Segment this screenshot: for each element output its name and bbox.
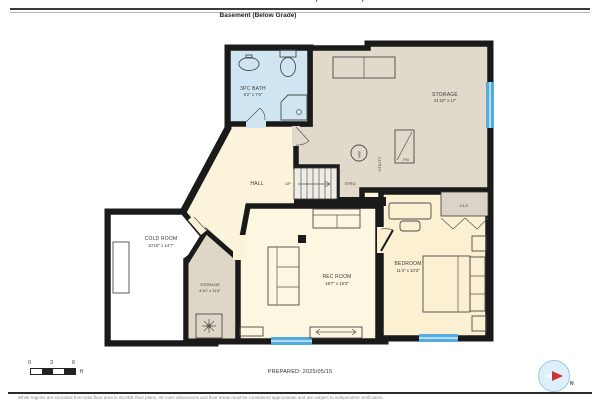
scale-6: 6 bbox=[72, 360, 75, 366]
floorplan-sheet: Canfield Crescent, Ottawa, ON Basement (… bbox=[0, 0, 600, 400]
label-bedroom-dims: 11'4" x 10'3" bbox=[396, 268, 420, 273]
window-rec bbox=[271, 337, 312, 345]
label-rec-dims: 18'7" x 15'3" bbox=[325, 281, 349, 286]
scale-0: 0 bbox=[28, 360, 31, 366]
label-rec: REC ROOM bbox=[322, 274, 351, 280]
prepared-date: PREPARED: 2025/05/15 bbox=[0, 369, 600, 375]
stairs bbox=[294, 168, 337, 199]
label-utility: UTILITY bbox=[377, 156, 382, 171]
label-storage-small: STORAGE bbox=[200, 282, 220, 287]
label-strg: STRG bbox=[344, 181, 355, 186]
label-up: UP bbox=[285, 181, 291, 186]
utility-door-gap bbox=[292, 126, 300, 146]
label-closet: CLO bbox=[460, 203, 468, 208]
label-storage-small-dims: 4'10" x 11'6" bbox=[199, 288, 221, 293]
label-hall: HALL bbox=[250, 181, 263, 187]
svg-text:HW: HW bbox=[357, 151, 362, 158]
compass-icon bbox=[538, 360, 570, 392]
room-rec bbox=[238, 206, 378, 341]
bath-door-gap bbox=[246, 120, 266, 128]
svg-text:FN: FN bbox=[403, 157, 408, 162]
hall-rec-opening bbox=[233, 235, 246, 260]
label-bath-dims: 6'2" x 7'6" bbox=[244, 92, 263, 97]
compass-needle bbox=[552, 371, 563, 381]
wall-post bbox=[298, 235, 306, 243]
label-cold: COLD ROOM bbox=[145, 236, 178, 242]
disclaimer-text: White regions are excluded from total fl… bbox=[18, 395, 582, 400]
label-bedroom: BEDROOM bbox=[394, 261, 421, 267]
floorplan-canvas: FN HW bbox=[0, 0, 600, 400]
compass-north-label: N bbox=[570, 381, 574, 387]
window-storage-right bbox=[486, 82, 494, 128]
label-cold-dims: 10'10" x 14'7" bbox=[148, 243, 174, 248]
window-bedroom bbox=[419, 334, 458, 342]
label-storage-main-dims: 21'10" x 17' bbox=[434, 98, 456, 103]
footer-divider bbox=[8, 392, 592, 394]
scale-3: 3 bbox=[50, 360, 53, 366]
